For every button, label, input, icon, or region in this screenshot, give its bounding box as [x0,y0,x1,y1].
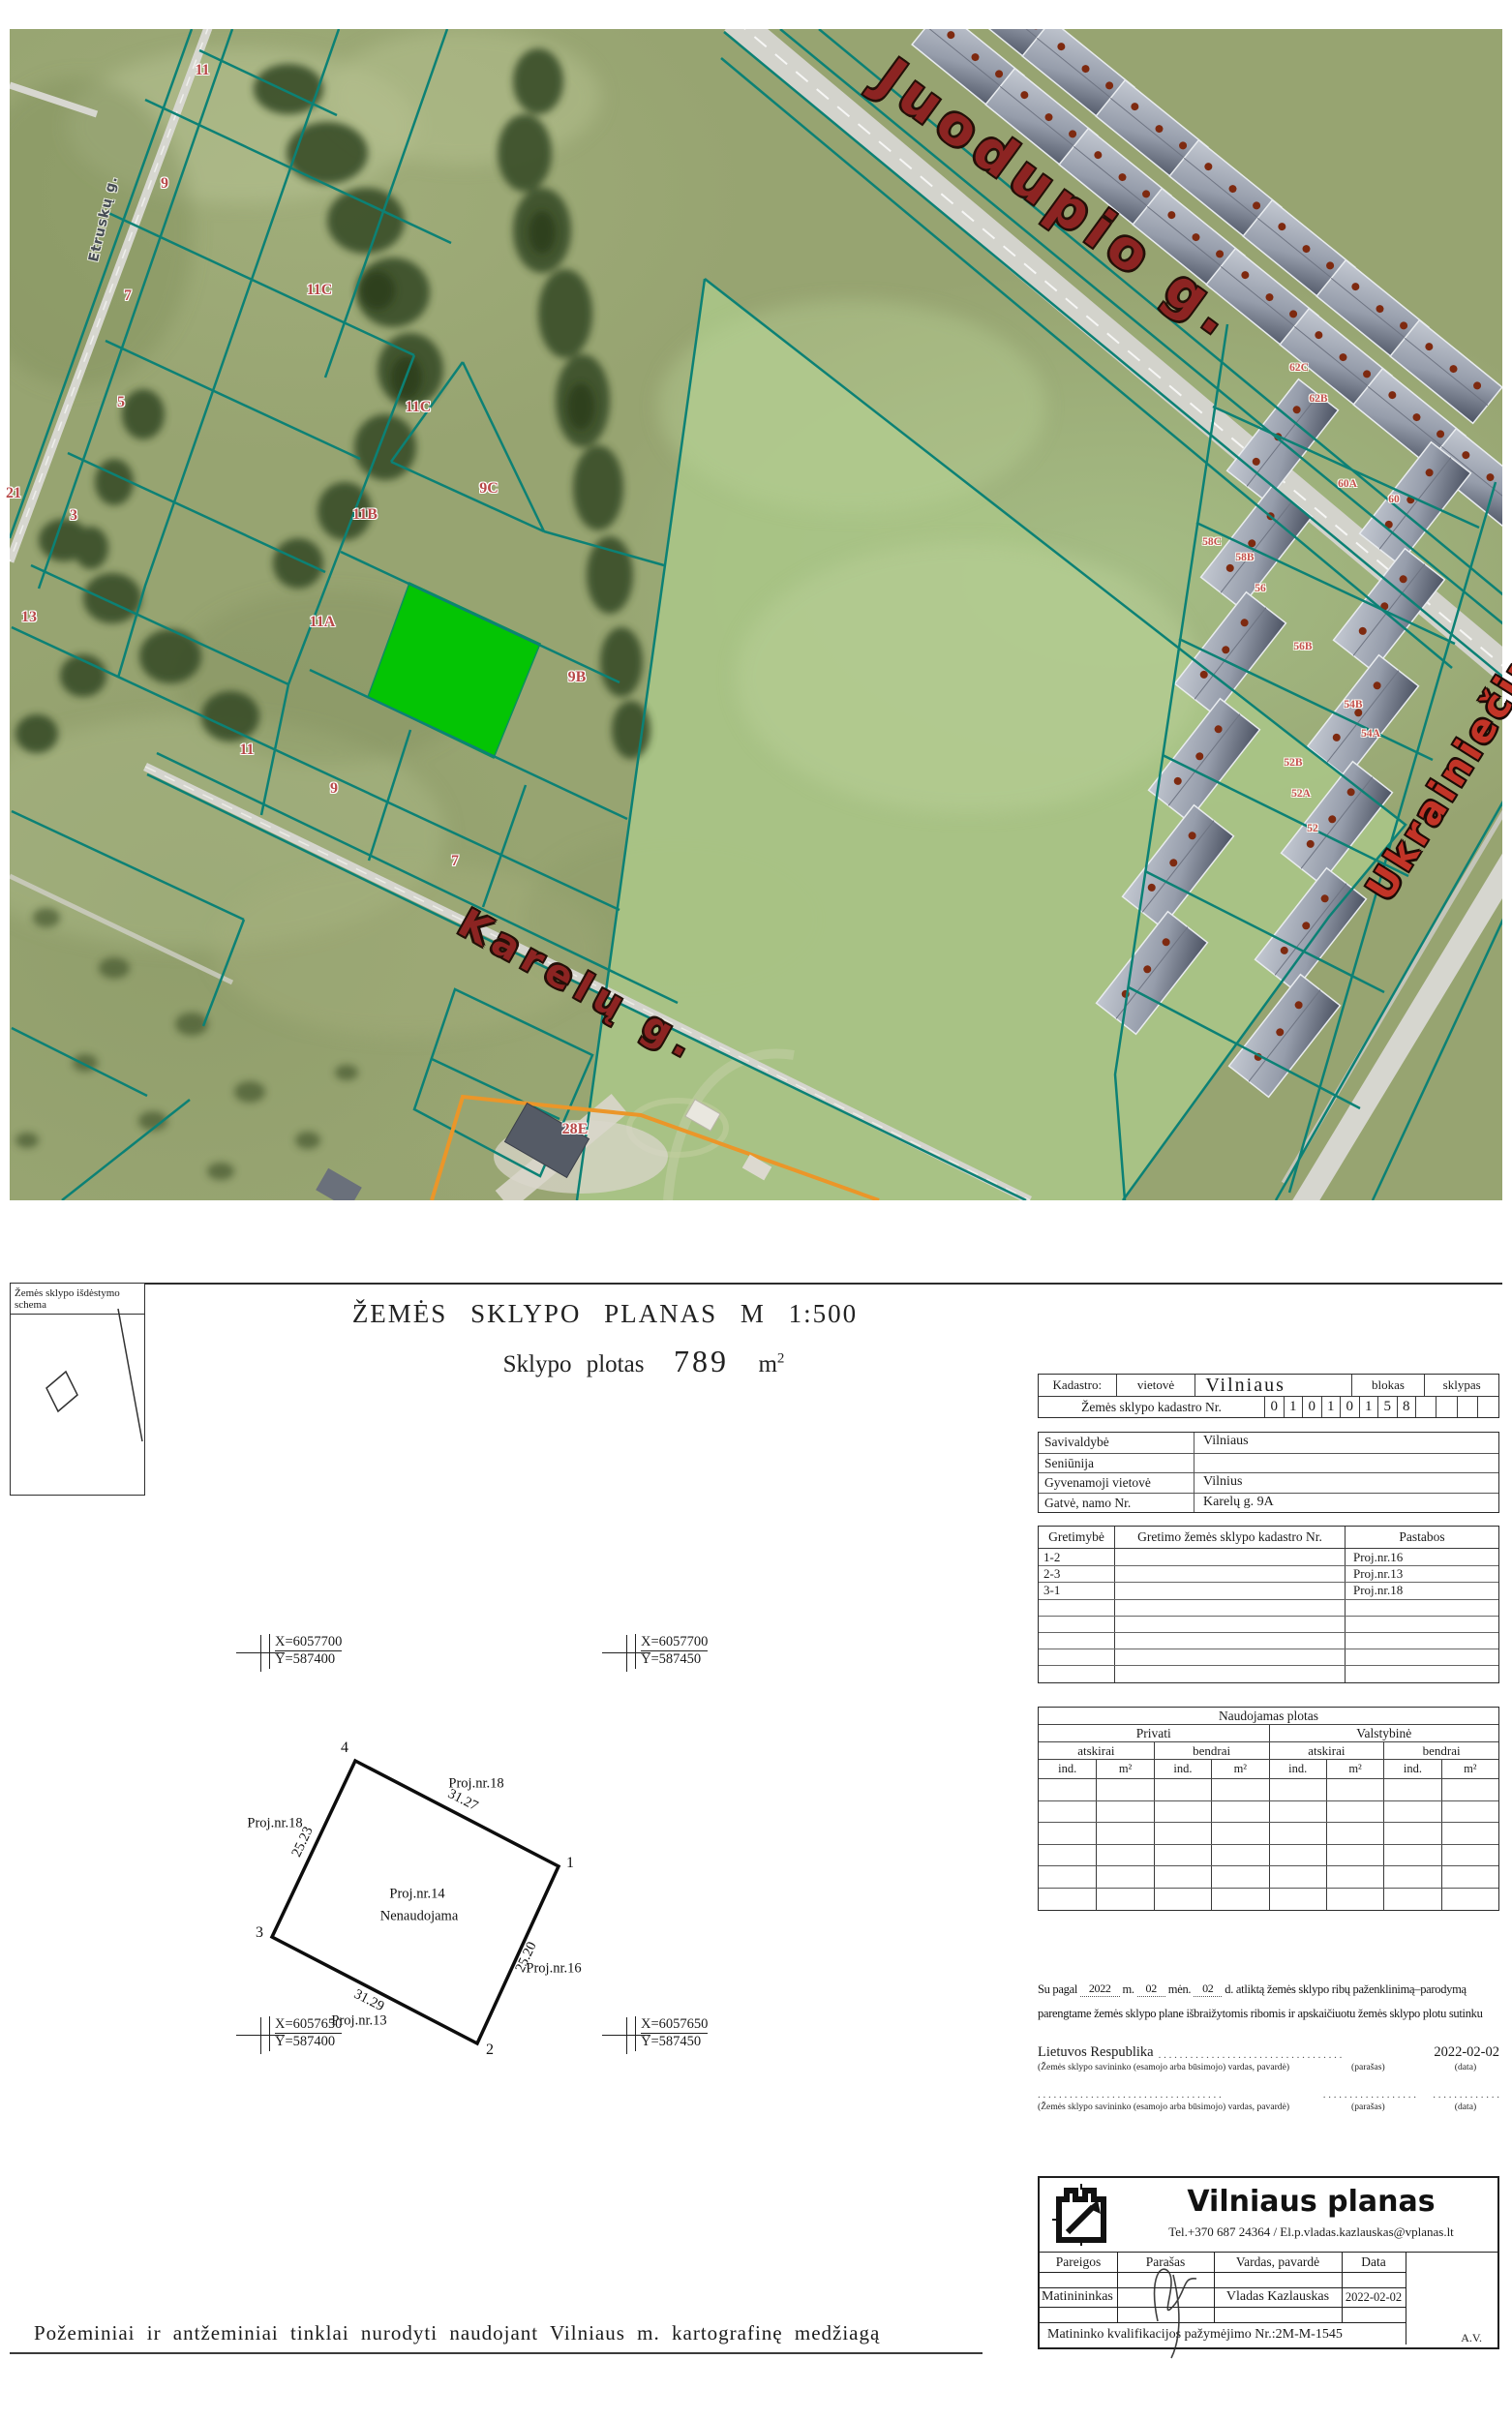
info-label: Gyvenamoji vietovė [1039,1473,1194,1493]
footer-col-header: Pareigos [1040,2254,1117,2270]
owner-name: Lietuvos Respublika [1038,2044,1154,2061]
diagram-region-label: Nenaudojama [380,1909,459,1925]
kadastro-digit-cell: 1 [1321,1397,1341,1417]
naudojamas-empty-cell [1096,1823,1153,1844]
owner-signature-block: Lietuvos Respublika . . . . . . . . . . … [1038,2044,1499,2112]
naudojamas-empty-cell [1154,1801,1211,1823]
naudojamas-empty-cell [1154,1779,1211,1800]
gretimybe-cell: 2-3 [1039,1566,1114,1582]
statement: Su pagal 2022 m. 02 mėn. 02 d. atliktą ž… [1038,1982,1512,2021]
diagram-edge-length: 25.23 [288,1825,317,1860]
naudojamas-empty-cell [1154,1845,1211,1866]
gretimybe-cell [1114,1633,1345,1649]
footer-col-header: Vardas, pavardė [1214,2254,1342,2270]
naudojamas-empty-cell [1383,1845,1440,1866]
area-value: 789 [674,1344,729,1378]
naudojamas-column: m² [1211,1760,1268,1778]
naudojamas-empty-cell [1383,1866,1440,1888]
gretimybe-cell [1039,1600,1114,1616]
naudojamas-column: ind. [1269,1760,1326,1778]
kadastro-nr-label: Žemės sklypo kadastro Nr. [1039,1397,1264,1417]
naudojamas-empty-cell [1441,1845,1498,1866]
coordinate-label: X=6057700Y=587450 [635,1634,708,1669]
naudojamas-columns: ind.m²ind.m²ind.m²ind.m² [1039,1760,1498,1779]
kadastro-digit-cell: 0 [1264,1397,1284,1417]
schema-title: Žemės sklypo išdėstymo schema [11,1284,144,1315]
diagram-corner-number: 4 [341,1739,348,1757]
naudojamas-empty-cell [1096,1801,1153,1823]
naudojamas-column: ind. [1383,1760,1440,1778]
naudojamas-subgroups: atskiraibendraiatskiraibendrai [1039,1742,1498,1760]
page-title: ŽEMĖS SKLYPO PLANAS M 1:500 [286,1299,924,1329]
naudojamas-empty-cell [1211,1889,1268,1910]
gretimybe-cell [1039,1617,1114,1632]
kadastro-digits: 01010158 [1264,1397,1498,1417]
gretimybe-cell [1114,1583,1345,1598]
gretimybe-cell: 1-2 [1039,1549,1114,1565]
plot-diagram-polygon [272,1761,559,2043]
naudojamas-empty-cell [1039,1801,1096,1823]
diagram-edge-length: 31.29 [351,1986,387,2015]
gretimybe-row [1039,1616,1498,1632]
info-value [1194,1454,1498,1473]
diagram-edge-length: 31.27 [445,1786,481,1815]
kadastro-vietove-value: Vilniaus [1194,1375,1350,1396]
kadastro-header-cell: vietovė [1116,1375,1195,1396]
coordinate-label: X=6057650Y=587400 [269,2016,342,2051]
statement-line2: parengtame žemės sklypo plane išbraižyto… [1038,2007,1512,2021]
caption-date: (data) [1432,2062,1499,2072]
gretimybe-header: Gretimybė [1039,1527,1114,1548]
kadastro-header-cell: sklypas [1424,1375,1498,1396]
naudojamas-empty-cell [1211,1866,1268,1888]
qualification-note: Matininko kvalifikacijos pažymėjimo Nr.:… [1047,2327,1343,2343]
gretimybe-cell [1114,1649,1345,1665]
naudojamas-empty-cell [1326,1845,1383,1866]
gretimybe-cell [1345,1666,1498,1681]
area-unit-sup: 2 [777,1351,785,1367]
gretimybe-row [1039,1649,1498,1665]
gretimybe-cell [1039,1649,1114,1665]
gretimybe-row [1039,1599,1498,1616]
naudojamas-empty-cell [1039,1889,1096,1910]
naudojamas-column: ind. [1039,1760,1096,1778]
naudojamas-empty-cell [1326,1866,1383,1888]
bottom-note: Požeminiai ir antžeminiai tinklai nurody… [34,2321,880,2345]
gretimybe-cell [1039,1666,1114,1681]
gretimybe-cell [1345,1617,1498,1632]
naudojamas-empty-cell [1383,1779,1440,1800]
info-value: Karelų g. 9A [1194,1494,1498,1513]
naudojamas-empty-cell [1039,1779,1096,1800]
info-value: Vilnius [1194,1473,1498,1493]
caption-owner-name: (Žemės sklypo savininko (esamojo arba bū… [1038,2102,1320,2112]
caption-signature: (parašas) [1320,2102,1416,2112]
stamp-av: A.V. [1461,2331,1482,2345]
gretimybe-header: Gretimo žemės sklypo kadastro Nr. [1114,1527,1345,1548]
naudojamas-empty-cell [1383,1823,1440,1844]
kadastro-digit-cell: 8 [1397,1397,1416,1417]
footer-col-header: Parašas [1117,2254,1214,2270]
gretimybe-row [1039,1632,1498,1649]
naudojamas-empty-cell [1441,1889,1498,1910]
gretimybe-row: 1-2Proj.nr.16 [1039,1549,1498,1565]
naudojamas-empty-cell [1096,1845,1153,1866]
naudojamas-group: Valstybinė [1269,1725,1499,1741]
coordinate-label: X=6057700Y=587400 [269,1634,342,1669]
info-table: SavivaldybėVilniausSeniūnijaGyvenamoji v… [1038,1432,1499,1513]
surveyor-role: Matinininkas [1042,2289,1117,2305]
naudojamas-empty-cell [1211,1801,1268,1823]
kadastro-digit-cell [1477,1397,1497,1417]
naudojamas-empty-cell [1269,1866,1326,1888]
gretimybe-cell [1114,1549,1345,1565]
naudojamas-empty-cell [1326,1889,1383,1910]
naudojamas-empty-cell [1326,1779,1383,1800]
diagram-region-label: Proj.nr.14 [389,1887,444,1903]
naudojamas-empty-cell [1441,1823,1498,1844]
naudojamas-groups: PrivatiValstybinė [1039,1725,1498,1742]
gretimybe-cell [1345,1649,1498,1665]
gretimybe-row [1039,1665,1498,1681]
naudojamas-empty-cell [1039,1866,1096,1888]
naudojamas-column: m² [1096,1760,1153,1778]
footer-signature-table: Pareigos Parašas Vardas, pavardė Data Ma… [1040,2253,1497,2348]
naudojamas-empty-cell [1039,1845,1096,1866]
naudojamas-empty-cell [1096,1866,1153,1888]
area-label: Sklypo plotas [503,1351,645,1377]
info-row: Seniūnija [1039,1453,1498,1473]
land-plan-page: Žemės sklypo išdėstymo schema ŽEMĖS SKLY… [0,0,1512,2420]
naudojamas-empty-cell [1154,1866,1211,1888]
info-row: SavivaldybėVilniaus [1039,1433,1498,1453]
naudojamas-subgroup: bendrai [1383,1742,1498,1759]
document-top-rule [10,1283,1502,1285]
naudojamas-empty-row [1039,1844,1498,1866]
surveyor-name: Vladas Kazlauskas [1214,2289,1342,2305]
kadastro-digit-cell: 0 [1302,1397,1321,1417]
kadastro-header-cell: Kadastro: [1039,1375,1116,1396]
caption-owner-name: (Žemės sklypo savininko (esamojo arba bū… [1038,2062,1320,2072]
naudojamas-column: ind. [1154,1760,1211,1778]
kadastro-digit-cell: 5 [1377,1397,1397,1417]
naudojamas-empty-cell [1211,1779,1268,1800]
company-logo-icon [1051,2184,1111,2246]
satellite-map [10,29,1502,1200]
diagram-corner-number: 1 [566,1855,574,1872]
kadastro-header-cell: blokas [1351,1375,1425,1396]
gretimybe-header: Pastabos [1345,1527,1498,1548]
naudojamas-empty-cell [1326,1801,1383,1823]
company-contact: Tel.+370 687 24364 / El.p.vladas.kazlaus… [1125,2224,1497,2240]
naudojamas-empty-cell [1269,1801,1326,1823]
coordinate-label: X=6057650Y=587450 [635,2016,708,2051]
naudojamas-empty-cell [1211,1845,1268,1866]
diagram-region-label: Proj.nr.18 [448,1776,503,1793]
diagram-corner-number: 2 [486,2042,494,2059]
naudojamas-empty-cell [1441,1866,1498,1888]
owner-sign-date: 2022-02-02 [1434,2044,1499,2061]
gretimybe-cell [1345,1600,1498,1616]
naudojamas-empty-cell [1383,1889,1440,1910]
naudojamas-column: m² [1441,1760,1498,1778]
naudojamas-empty-cell [1211,1823,1268,1844]
gretimybe-cell [1114,1566,1345,1582]
statement-month: 02 [1137,1981,1165,1997]
gretimybe-cell: Proj.nr.16 [1345,1549,1498,1565]
company-name: Vilniaus planas [1125,2178,1497,2219]
gretimybe-cell: Proj.nr.18 [1345,1583,1498,1598]
area-unit: m [758,1351,776,1377]
diagram-corner-number: 3 [256,1924,263,1942]
footer-col-header: Data [1342,2254,1406,2270]
footer-block: Vilniaus planas Tel.+370 687 24364 / El.… [1038,2176,1499,2349]
naudojamas-empty-row [1039,1888,1498,1910]
info-value: Vilniaus [1194,1433,1498,1453]
gretimybe-cell [1345,1633,1498,1649]
gretimybe-cell: Proj.nr.13 [1345,1566,1498,1582]
naudojamas-subgroup: atskirai [1269,1742,1384,1759]
naudojamas-empty-row [1039,1800,1498,1823]
gretimybe-table: Gretimybė Gretimo žemės sklypo kadastro … [1038,1526,1499,1683]
diagram-region-label: Proj.nr.13 [331,2013,386,2030]
naudojamas-empty-cell [1269,1889,1326,1910]
naudojamas-empty-cell [1441,1779,1498,1800]
info-row: Gyvenamoji vietovėVilnius [1039,1472,1498,1493]
naudojamas-empty-cell [1269,1823,1326,1844]
naudojamas-empty-cell [1326,1823,1383,1844]
info-label: Savivaldybė [1039,1433,1194,1453]
gretimybe-row: 2-3Proj.nr.13 [1039,1565,1498,1582]
naudojamas-empty-cell [1039,1823,1096,1844]
kadastro-table: Kadastro: vietovė Vilniaus blokas sklypa… [1038,1374,1499,1418]
naudojamas-empty-row [1039,1822,1498,1844]
page-subtitle: Sklypo plotas 789 m2 [324,1344,963,1379]
naudojamas-empty-cell [1096,1889,1153,1910]
kadastro-digit-cell [1457,1397,1477,1417]
naudojamas-empty-cell [1154,1823,1211,1844]
statement-day: 02 [1194,1981,1222,1997]
naudojamas-empty-cell [1154,1889,1211,1910]
naudojamas-empty-cell [1383,1801,1440,1823]
naudojamas-empty-cell [1096,1779,1153,1800]
info-label: Seniūnija [1039,1454,1194,1473]
gretimybe-cell: 3-1 [1039,1583,1114,1598]
info-label: Gatvė, namo Nr. [1039,1494,1194,1513]
gretimybe-cell [1114,1666,1345,1681]
schema-box: Žemės sklypo išdėstymo schema [10,1283,145,1496]
gretimybe-row: 3-1Proj.nr.18 [1039,1582,1498,1598]
diagram-region-label: Proj.nr.18 [247,1816,302,1832]
naudojamas-empty-cell [1269,1779,1326,1800]
diagram-edge-length: 25.20 [512,1940,540,1976]
caption-signature: (parašas) [1320,2062,1416,2072]
bottom-note-rule [10,2352,983,2354]
caption-date: (data) [1432,2102,1499,2112]
naudojamas-title: Naudojamas plotas [1039,1708,1498,1725]
gretimybe-cell [1114,1617,1345,1632]
statement-year: 2022 [1080,1981,1120,1997]
kadastro-digit-cell: 1 [1284,1397,1303,1417]
naudojamas-empty-row [1039,1779,1498,1800]
diagram-region-label: Proj.nr.16 [526,1961,581,1978]
gretimybe-cell [1114,1600,1345,1616]
kadastro-digit-cell [1415,1397,1436,1417]
naudojamas-subgroup: bendrai [1154,1742,1269,1759]
kadastro-digit-cell: 0 [1340,1397,1359,1417]
naudojamas-subgroup: atskirai [1039,1742,1154,1759]
naudojamas-empty-row [1039,1865,1498,1888]
naudojamas-empty-cell [1441,1801,1498,1823]
gretimybe-cell [1039,1633,1114,1649]
naudojamas-group: Privati [1039,1725,1269,1741]
naudojamas-empty-cell [1269,1845,1326,1866]
info-row: Gatvė, namo Nr.Karelų g. 9A [1039,1493,1498,1513]
statement-line1: Su pagal 2022 m. 02 mėn. 02 d. atliktą ž… [1038,1982,1512,1998]
kadastro-digit-cell: 1 [1359,1397,1378,1417]
naudojamas-table: Naudojamas plotas PrivatiValstybinė atsk… [1038,1707,1499,1911]
naudojamas-column: m² [1326,1760,1383,1778]
map-graphics [10,29,1502,1200]
surveyor-date: 2022-02-02 [1340,2290,1407,2305]
kadastro-digit-cell [1436,1397,1456,1417]
